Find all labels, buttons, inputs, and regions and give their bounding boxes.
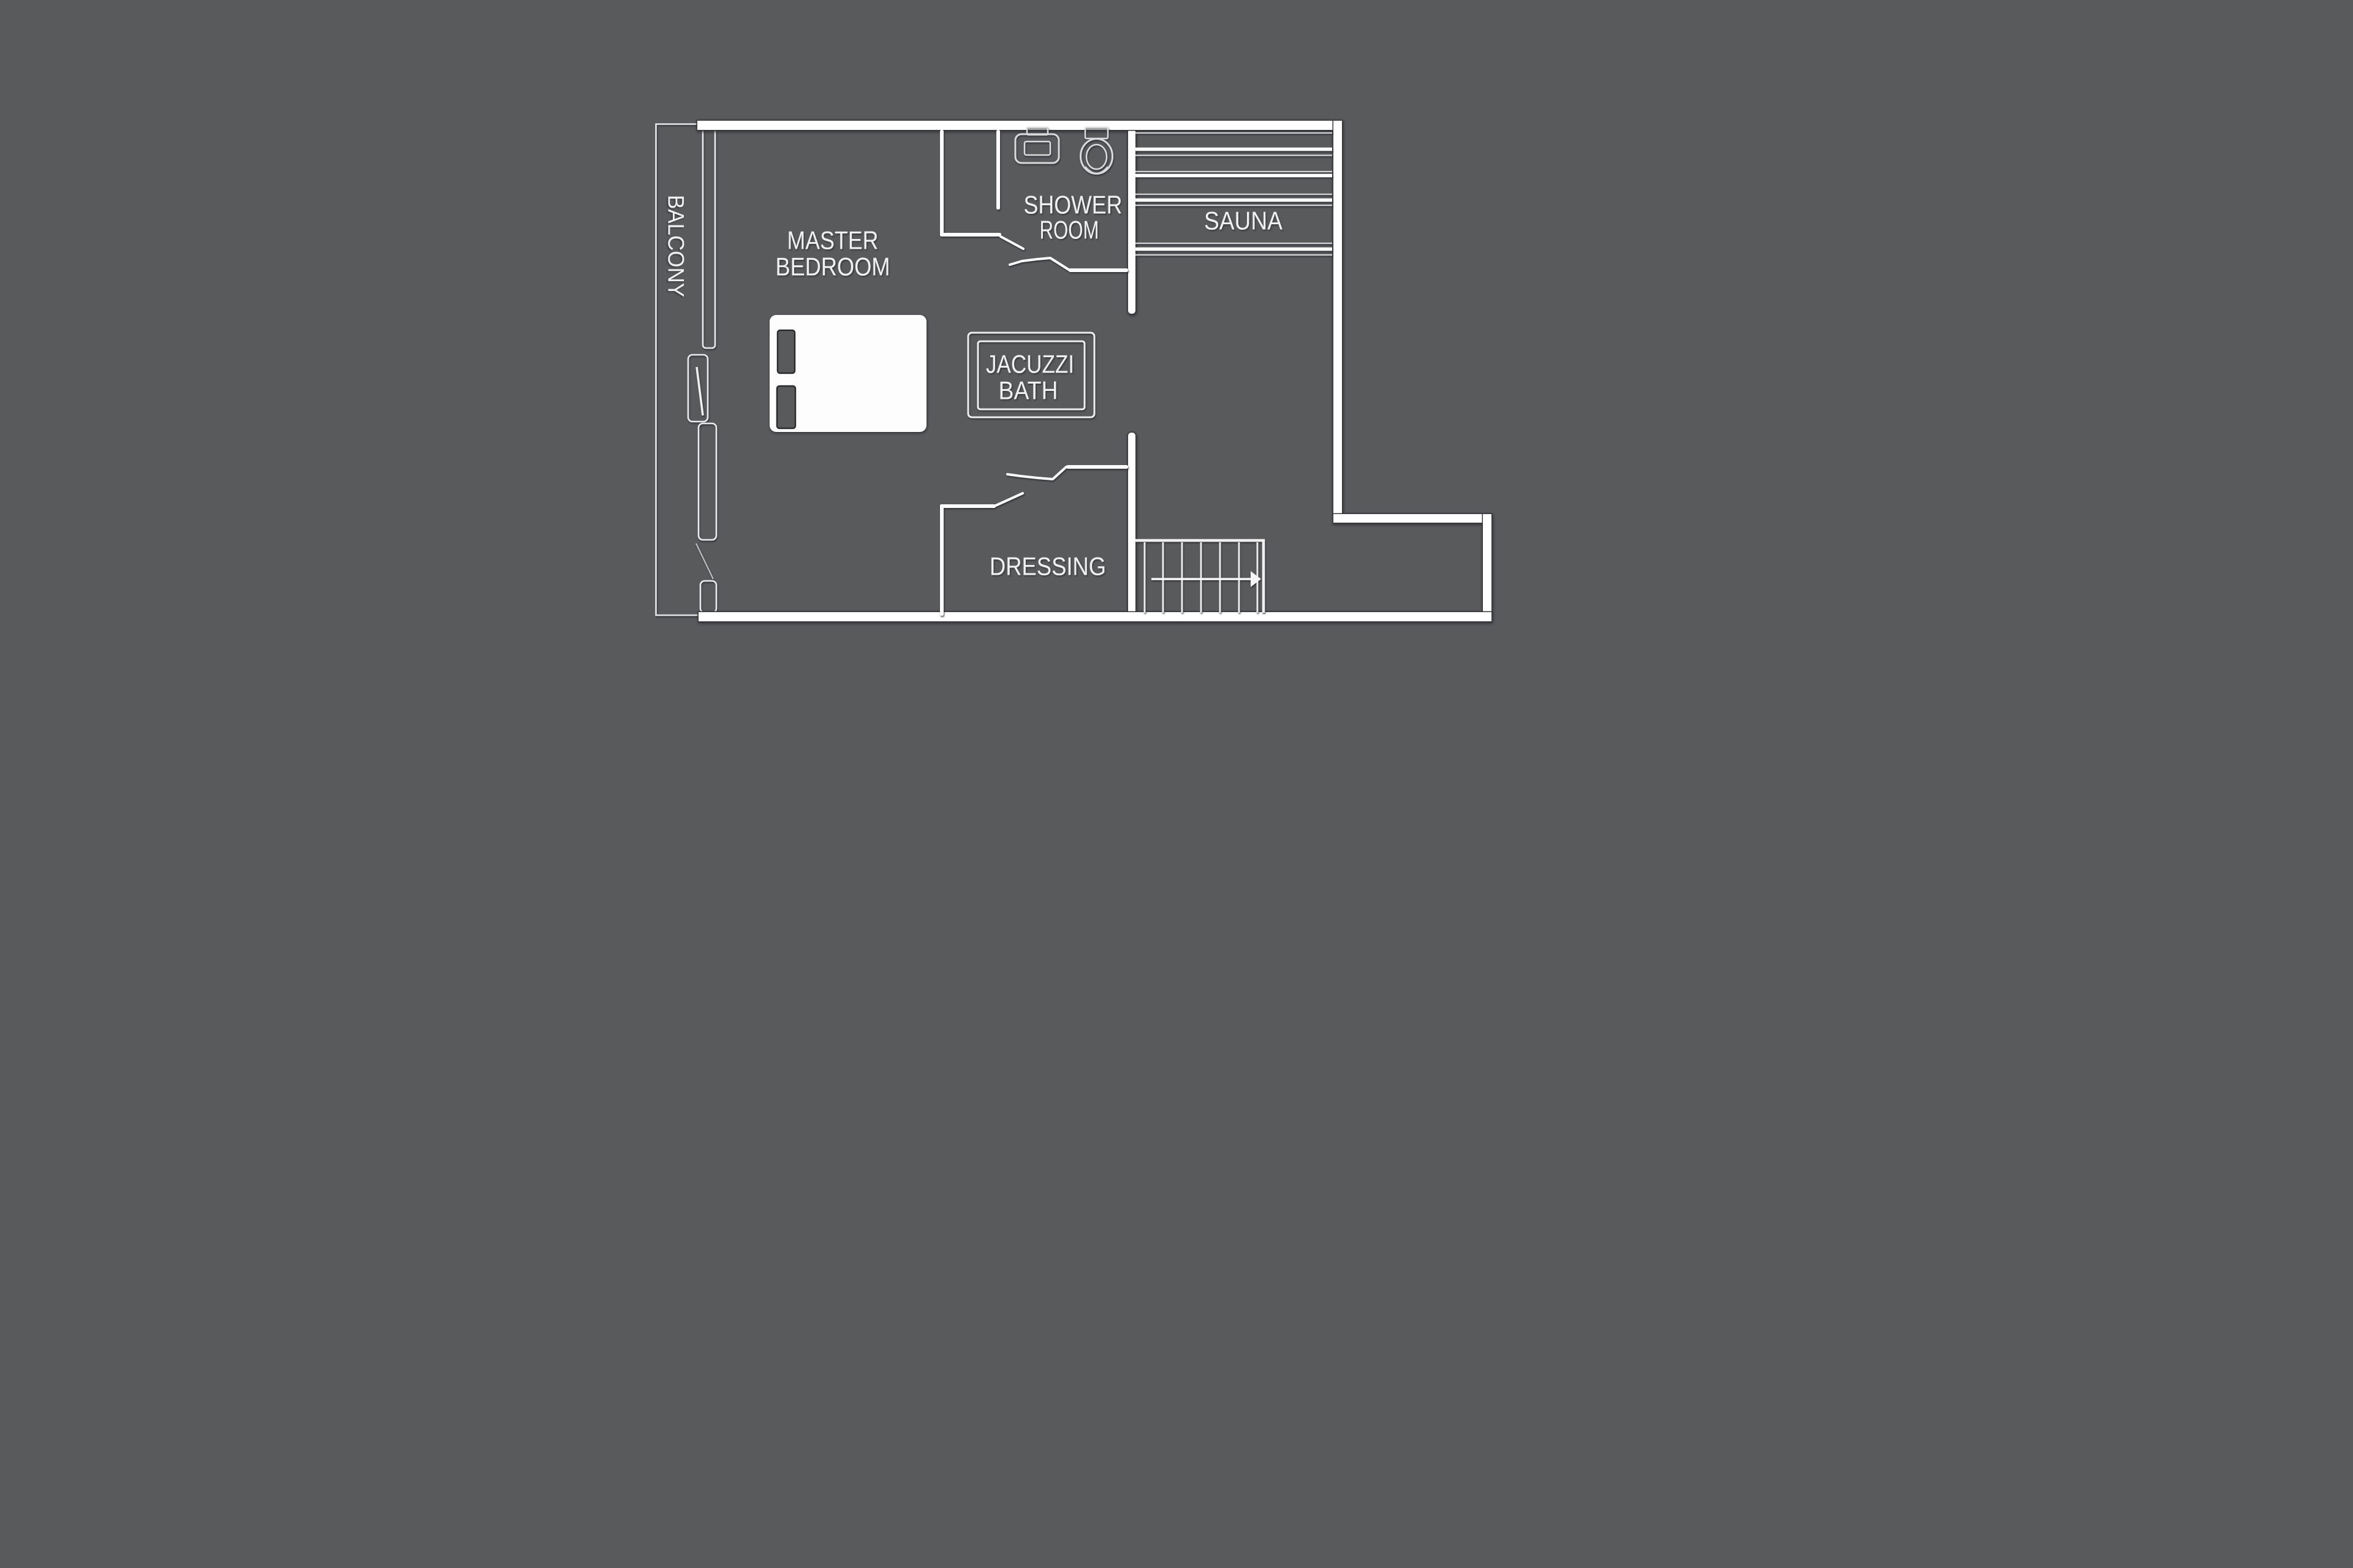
svg-text:BALCONY: BALCONY — [664, 195, 689, 297]
svg-text:BATH: BATH — [999, 376, 1058, 405]
svg-text:SHOWER: SHOWER — [1024, 191, 1123, 219]
svg-text:MASTER: MASTER — [787, 226, 879, 255]
svg-text:JACUZZI: JACUZZI — [986, 350, 1074, 379]
svg-text:SAUNA: SAUNA — [1204, 206, 1283, 235]
svg-text:DRESSING: DRESSING — [990, 552, 1106, 581]
svg-text:ROOM: ROOM — [1040, 216, 1099, 244]
svg-text:BEDROOM: BEDROOM — [776, 252, 890, 281]
